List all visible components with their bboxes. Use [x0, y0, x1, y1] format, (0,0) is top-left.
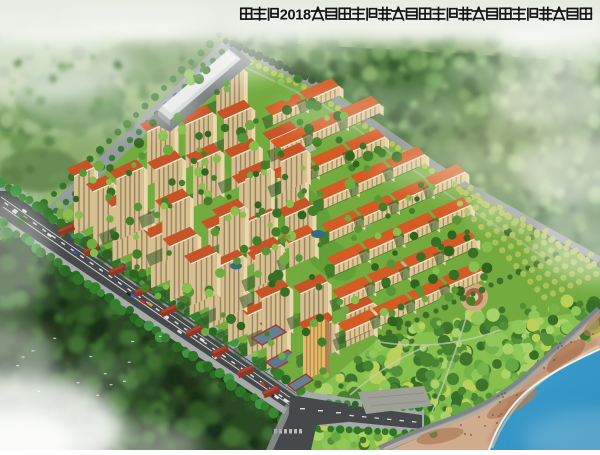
svg-text:2018: 2018	[280, 7, 311, 23]
